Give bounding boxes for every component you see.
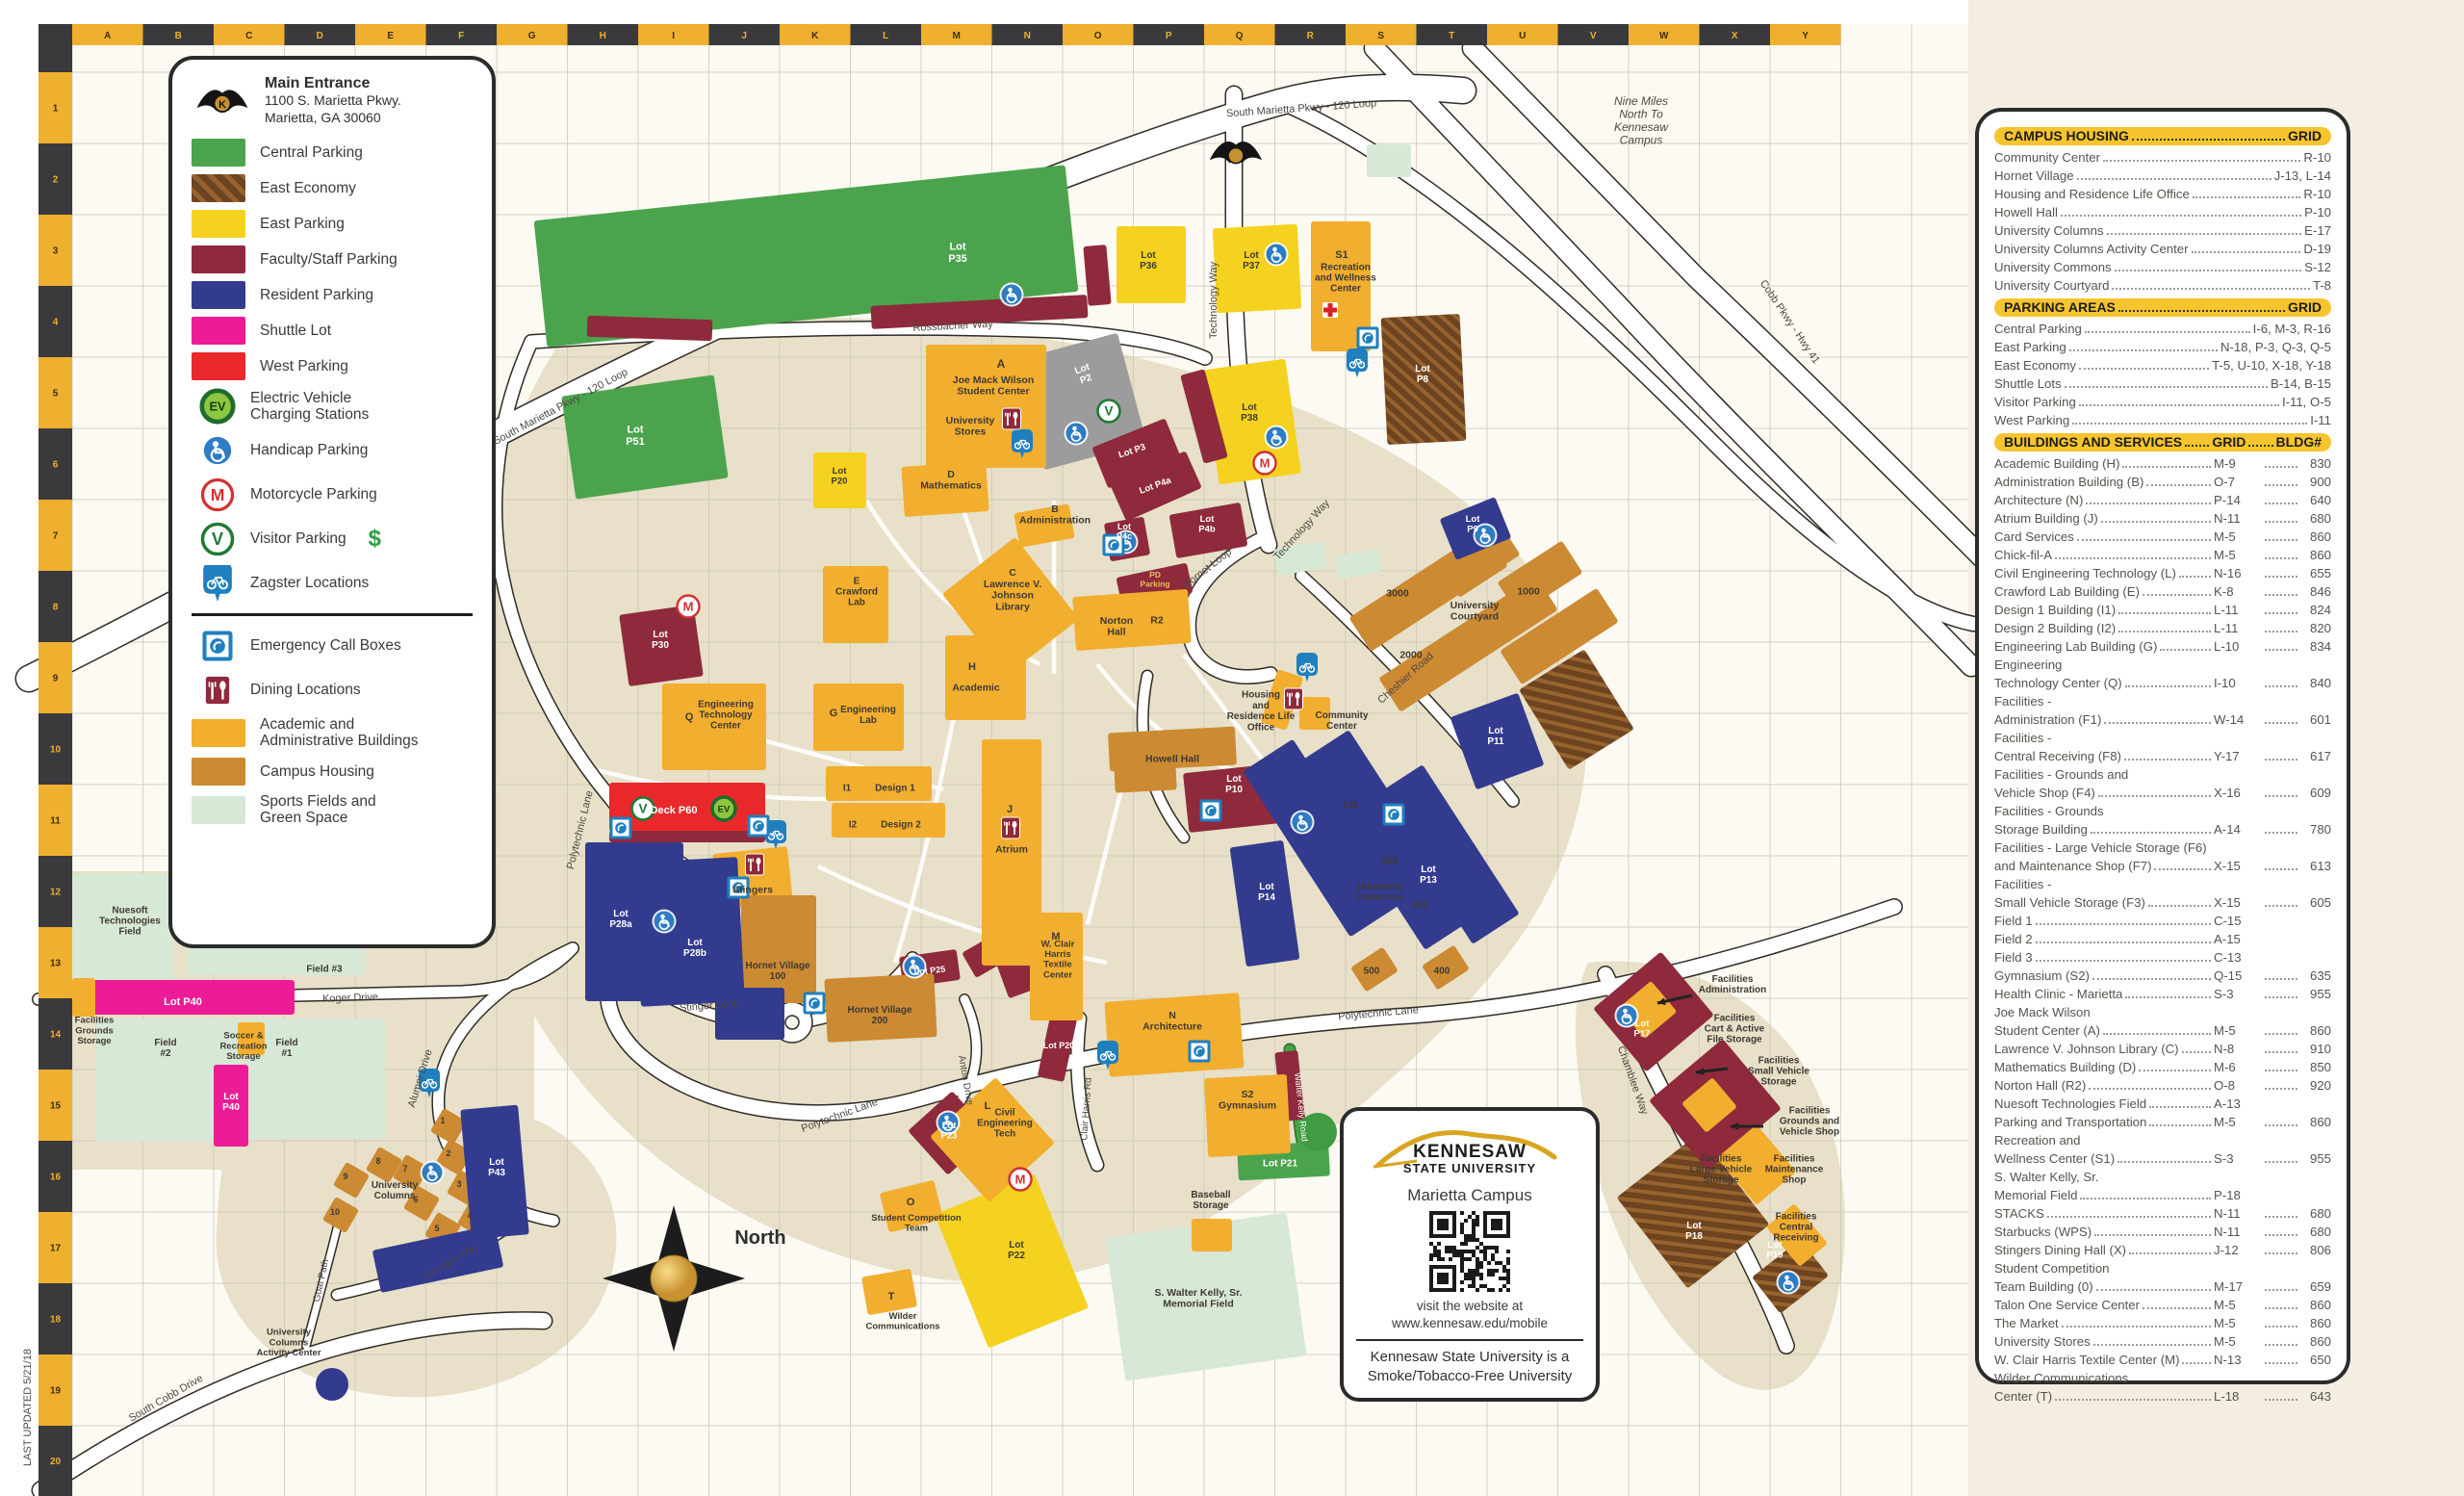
motorcycle-parking-icon: M bbox=[1010, 1169, 1032, 1191]
svg-text:M: M bbox=[683, 600, 694, 614]
index-entry: Atrium Building (J)N-11680 bbox=[1994, 509, 2331, 528]
map-label: LotP30 bbox=[652, 630, 669, 651]
index-column-header: GRID bbox=[2288, 128, 2322, 143]
map-label: Field #3 bbox=[306, 965, 343, 975]
index-entry-name: W. Clair Harris Textile Center (M) bbox=[1994, 1351, 2179, 1369]
index-entry: Starbucks (WPS)N-11680 bbox=[1994, 1223, 2331, 1241]
ruler-row-label: 12 bbox=[50, 888, 62, 898]
map-label: LotP20 bbox=[832, 466, 848, 487]
map-label: 6 bbox=[413, 1195, 418, 1204]
legend-item-label: East Parking bbox=[260, 216, 345, 232]
main-entrance-title: Main Entrance bbox=[265, 75, 401, 92]
ruler-col-label: H bbox=[600, 31, 606, 41]
index-entry-name: Parking and Transportation bbox=[1994, 1113, 2146, 1131]
map-label: LotP35 bbox=[948, 242, 967, 265]
index-entry-prefix: Facilities - Grounds bbox=[1994, 802, 2331, 820]
index-entry-grid: W-14 bbox=[2214, 710, 2262, 729]
paid-parking-dollar-icon: $ bbox=[369, 526, 381, 553]
index-entry-grid: A-13 bbox=[2214, 1095, 2262, 1113]
map-label: Howell Hall bbox=[1145, 754, 1199, 765]
map-label: Q bbox=[685, 711, 694, 723]
ruler-col-label: P bbox=[1166, 31, 1172, 41]
ruler-row-label: 18 bbox=[50, 1315, 62, 1326]
index-entry: Wellness Center (S1)S-3955 bbox=[1994, 1149, 2331, 1168]
legend-swatch bbox=[192, 796, 245, 824]
index-entry-grid: L-10 bbox=[2214, 637, 2262, 656]
index-column-header: GRID bbox=[2212, 434, 2246, 450]
map-label: 8 bbox=[375, 1156, 380, 1166]
map-label: LotP14 bbox=[1258, 882, 1275, 903]
svg-text:EV: EV bbox=[718, 805, 731, 815]
map-label: 5 bbox=[434, 1224, 439, 1233]
index-section-title: PARKING AREAS bbox=[2004, 299, 2116, 315]
index-entry-prefix: Facilities - bbox=[1994, 729, 2331, 747]
index-entry: STACKSN-11680 bbox=[1994, 1204, 2331, 1223]
map-label: Stingers bbox=[732, 885, 773, 896]
map-label: LotP22 bbox=[1008, 1240, 1025, 1261]
index-entry: Central ParkingI-6, M-3, R-16 bbox=[1994, 320, 2331, 338]
map-label: LotP37 bbox=[1243, 250, 1260, 271]
legend-item: Emergency Call Boxes bbox=[192, 628, 473, 664]
map-label: LotP36 bbox=[1140, 250, 1157, 271]
legend-item: Campus Housing bbox=[192, 758, 473, 786]
map-label: LotP4b bbox=[1198, 514, 1216, 535]
handicap-parking-icon bbox=[1265, 243, 1289, 267]
index-entry-bldg: 860 bbox=[2300, 1021, 2331, 1040]
index-entry-grid: I-11 bbox=[2310, 411, 2331, 429]
ruler-col-label: G bbox=[528, 31, 536, 41]
index-entry: Vehicle Shop (F4)X-16609 bbox=[1994, 784, 2331, 802]
svg-text:K: K bbox=[218, 99, 226, 111]
legend-item: Resident Parking bbox=[192, 281, 473, 309]
index-entry-grid: O-7 bbox=[2214, 473, 2262, 491]
index-entry-name: The Market bbox=[1994, 1314, 2059, 1332]
map-label: 9 bbox=[343, 1172, 347, 1181]
map-label: Design 2 bbox=[881, 820, 921, 831]
legend-item-label: Academic and Administrative Buildings bbox=[260, 716, 419, 750]
index-entry-name: Vehicle Shop (F4) bbox=[1994, 784, 2095, 802]
legend-item: East Parking bbox=[192, 210, 473, 238]
index-entry-bldg: 643 bbox=[2300, 1387, 2331, 1406]
ruler-row-label: 20 bbox=[50, 1457, 62, 1467]
legend-item: Zagster Locations bbox=[192, 565, 473, 602]
dining-icon bbox=[746, 854, 764, 875]
map-label: Deck P60 bbox=[651, 805, 698, 816]
index-entry-grid: M-6 bbox=[2214, 1058, 2262, 1076]
svg-text:STATE UNIVERSITY: STATE UNIVERSITY bbox=[1403, 1161, 1536, 1175]
emergency-callbox-icon bbox=[1201, 801, 1220, 820]
index-entry: University StoresM-5860 bbox=[1994, 1332, 2331, 1351]
dining-icon bbox=[1002, 817, 1020, 838]
index-entry-bldg: 680 bbox=[2300, 1204, 2331, 1223]
index-entry-name: and Maintenance Shop (F7) bbox=[1994, 857, 2151, 875]
svg-text:V: V bbox=[212, 529, 224, 549]
index-entry: Parking and TransportationM-5860 bbox=[1994, 1113, 2331, 1131]
index-section-title: BUILDINGS AND SERVICES bbox=[2004, 434, 2182, 450]
map-label: I2 bbox=[849, 820, 858, 831]
index-entry-name: Housing and Residence Life Office bbox=[1994, 185, 2190, 203]
emergency-callbox-icon bbox=[1358, 328, 1377, 348]
index-entry-grid: O-8 bbox=[2214, 1076, 2262, 1095]
index-entry: Community CenterR-10 bbox=[1994, 148, 2331, 167]
index-entry-name: Engineering Lab Building (G) bbox=[1994, 637, 2157, 656]
dining-icon bbox=[199, 672, 236, 709]
parking-lot bbox=[587, 316, 713, 342]
index-entry-bldg: 910 bbox=[2300, 1040, 2331, 1058]
index-entry-bldg: 601 bbox=[2300, 710, 2331, 729]
index-entry-grid: N-11 bbox=[2214, 1204, 2262, 1223]
map-label: Soccer &RecreationStorage bbox=[219, 1031, 267, 1062]
index-section-header: BUILDINGS AND SERVICESGRIDBLDG# bbox=[1994, 433, 2331, 451]
index-entry-grid: B-14, B-15 bbox=[2271, 374, 2331, 393]
index-entry-grid: S-3 bbox=[2214, 985, 2262, 1003]
ruler-row-label: 4 bbox=[53, 318, 59, 328]
map-label: W. ClairHarrisTextileCenter bbox=[1041, 939, 1075, 980]
index-entry-bldg: 955 bbox=[2300, 1149, 2331, 1168]
ruler-col-label: E bbox=[387, 31, 394, 41]
index-entry-grid: C-13 bbox=[2214, 948, 2262, 967]
ruler-col-label: X bbox=[1732, 31, 1738, 41]
legend-item: East Economy bbox=[192, 174, 473, 202]
index-entry-name: University Courtyard bbox=[1994, 276, 2109, 295]
legend-item-label: Motorcycle Parking bbox=[250, 486, 377, 503]
index-entry: University CommonsS-12 bbox=[1994, 258, 2331, 276]
legend-item-label: Zagster Locations bbox=[250, 575, 369, 591]
map-label: J bbox=[1007, 804, 1013, 815]
svg-text:M: M bbox=[211, 485, 225, 504]
index-entry-bldg: 680 bbox=[2300, 1223, 2331, 1241]
index-entry: W. Clair Harris Textile Center (M)N-1365… bbox=[1994, 1351, 2331, 1369]
ruler-col-label: M bbox=[953, 31, 961, 41]
index-entry-name: Mathematics Building (D) bbox=[1994, 1058, 2136, 1076]
ruler-col-label: F bbox=[458, 31, 464, 41]
map-label: Lot P21 bbox=[1263, 1159, 1298, 1170]
legend-swatch bbox=[192, 210, 245, 238]
ruler-col-label: K bbox=[811, 31, 819, 41]
index-entry-name: Chick-fil-A bbox=[1994, 546, 2052, 564]
legend-swatch bbox=[192, 139, 245, 167]
ruler-col-label: U bbox=[1519, 31, 1526, 41]
index-entry-bldg: 860 bbox=[2300, 1332, 2331, 1351]
index-entry-name: Nuesoft Technologies Field bbox=[1994, 1095, 2146, 1113]
index-entry: Field 1C-15 bbox=[1994, 912, 2331, 930]
index-entry-name: Design 1 Building (I1) bbox=[1994, 601, 2116, 619]
ev-charging-icon: EV bbox=[712, 797, 735, 820]
legend-swatch bbox=[192, 245, 245, 273]
index-entry-name: University Stores bbox=[1994, 1332, 2091, 1351]
index-entry: Gymnasium (S2)Q-15635 bbox=[1994, 967, 2331, 985]
map-label: 7 bbox=[402, 1164, 407, 1174]
index-entry-name: University Columns bbox=[1994, 221, 2104, 240]
index-entry: Design 1 Building (I1)L-11824 bbox=[1994, 601, 2331, 619]
handicap-parking-icon bbox=[421, 1161, 445, 1185]
index-entry-bldg: 830 bbox=[2300, 454, 2331, 473]
index-entry-name: Gymnasium (S2) bbox=[1994, 967, 2090, 985]
index-entry-name: West Parking bbox=[1994, 411, 2069, 429]
index-entry-grid: I-6, M-3, R-16 bbox=[2253, 320, 2331, 338]
index-entry: Hornet VillageJ-13, L-14 bbox=[1994, 167, 2331, 185]
handicap-parking-icon bbox=[1291, 811, 1315, 835]
index-entry-grid: X-15 bbox=[2214, 857, 2262, 875]
legend-swatch bbox=[192, 174, 245, 202]
index-entry-grid: J-12 bbox=[2214, 1241, 2262, 1259]
smoke-free-note: Kennesaw State University is a Smoke/Tob… bbox=[1356, 1339, 1583, 1385]
index-entry-name: Academic Building (H) bbox=[1994, 454, 2119, 473]
map-label: 1 bbox=[440, 1116, 445, 1125]
index-entry-name: Administration Building (B) bbox=[1994, 473, 2143, 491]
map-label: LotP23 bbox=[941, 1121, 958, 1142]
index-entry-grid: J-13, L-14 bbox=[2274, 167, 2331, 185]
index-entry-grid: N-18, P-3, Q-3, Q-5 bbox=[2220, 338, 2331, 356]
index-entry: Visitor ParkingI-11, O-5 bbox=[1994, 393, 2331, 411]
visitor-parking-icon: V bbox=[1098, 400, 1120, 423]
index-entry-name: Civil Engineering Technology (L) bbox=[1994, 564, 2176, 582]
index-entry-grid: T-5, U-10, X-18, Y-18 bbox=[2212, 356, 2331, 374]
index-entry-grid: N-11 bbox=[2214, 1223, 2262, 1241]
map-label: 100 bbox=[1343, 801, 1359, 812]
index-entry: East ParkingN-18, P-3, Q-3, Q-5 bbox=[1994, 338, 2331, 356]
ruler-col-label: R bbox=[1307, 31, 1315, 41]
index-entry-name: Wellness Center (S1) bbox=[1994, 1149, 2115, 1168]
ruler-col-label: T bbox=[1449, 31, 1454, 41]
map-label: S1 bbox=[1335, 249, 1347, 261]
ruler-col-label: S bbox=[1377, 31, 1384, 41]
legend-item-label: Electric Vehicle Charging Stations bbox=[250, 390, 369, 424]
index-entry: Team Building (0)M-17659 bbox=[1994, 1277, 2331, 1296]
index-entry-bldg: 850 bbox=[2300, 1058, 2331, 1076]
visitor-parking-icon: V bbox=[199, 521, 236, 557]
ruler-row-label: 9 bbox=[53, 674, 59, 684]
index-entry-grid: I-11, O-5 bbox=[2282, 393, 2331, 411]
legend-panel: K Main Entrance 1100 S. Marietta Pkwy. M… bbox=[168, 56, 496, 948]
index-entry-name: Administration (F1) bbox=[1994, 710, 2101, 729]
ruler-col-label: I bbox=[672, 31, 675, 41]
main-entrance-address1: 1100 S. Marietta Pkwy. bbox=[265, 92, 401, 110]
index-entry-name: Storage Building bbox=[1994, 820, 2088, 838]
index-entry: Talon One Service CenterM-5860 bbox=[1994, 1296, 2331, 1314]
map-label: 4 bbox=[467, 1211, 472, 1221]
index-entry-grid: E-17 bbox=[2304, 221, 2331, 240]
legend-items: Central ParkingEast EconomyEast ParkingF… bbox=[192, 139, 473, 826]
map-label: G bbox=[830, 708, 838, 719]
svg-text:EV: EV bbox=[209, 400, 226, 414]
map-label: H bbox=[968, 661, 976, 673]
legend-item: VVisitor Parking$ bbox=[192, 521, 473, 557]
compass-ball bbox=[651, 1255, 697, 1302]
ruler-row-label: 15 bbox=[50, 1101, 62, 1112]
index-entry-grid: S-3 bbox=[2214, 1149, 2262, 1168]
map-label: Joe Mack WilsonStudent Center bbox=[953, 374, 1035, 398]
index-entry-prefix: Joe Mack Wilson bbox=[1994, 1003, 2331, 1021]
legend-item: Sports Fields and Green Space bbox=[192, 793, 473, 827]
index-entry-name: East Economy bbox=[1994, 356, 2076, 374]
index-entry: Norton Hall (R2)O-8920 bbox=[1994, 1076, 2331, 1095]
index-entry-name: Atrium Building (J) bbox=[1994, 509, 2098, 528]
index-entry-name: Norton Hall (R2) bbox=[1994, 1076, 2086, 1095]
index-entry: East EconomyT-5, U-10, X-18, Y-18 bbox=[1994, 356, 2331, 374]
index-entry-bldg: 846 bbox=[2300, 582, 2331, 601]
ruler-row-label: 11 bbox=[50, 816, 61, 827]
ruler-row-label: 13 bbox=[50, 959, 62, 969]
building-academic bbox=[1192, 1219, 1232, 1251]
index-entry-grid: N-16 bbox=[2214, 564, 2262, 582]
legend-swatch bbox=[192, 352, 245, 380]
map-label: 10 bbox=[330, 1207, 340, 1217]
index-panel: CAMPUS HOUSINGGRIDCommunity CenterR-10Ho… bbox=[1975, 108, 2350, 1384]
map-label: LotP51 bbox=[626, 425, 645, 448]
legend-item: Shuttle Lot bbox=[192, 317, 473, 345]
index-entry-name: Lawrence V. Johnson Library (C) bbox=[1994, 1040, 2179, 1058]
index-entry-name: Howell Hall bbox=[1994, 203, 2058, 221]
index-entry-bldg: 680 bbox=[2300, 509, 2331, 528]
ev-charging-icon: EV bbox=[199, 388, 236, 425]
index-entry-bldg: 613 bbox=[2300, 857, 2331, 875]
index-entry-name: Crawford Lab Building (E) bbox=[1994, 582, 2140, 601]
index-entry-name: Student Center (A) bbox=[1994, 1021, 2100, 1040]
index-entry: Academic Building (H)M-9830 bbox=[1994, 454, 2331, 473]
index-entry: Student Center (A)M-5860 bbox=[1994, 1021, 2331, 1040]
campus-name: Marietta Campus bbox=[1407, 1186, 1531, 1205]
map-label: T bbox=[888, 1291, 895, 1303]
dining-icon bbox=[1003, 408, 1021, 429]
motorcycle-parking-icon: M bbox=[678, 596, 700, 618]
ruler-row-label: 16 bbox=[50, 1173, 62, 1183]
activity-center-circle bbox=[316, 1368, 348, 1401]
ruler-row-label: 6 bbox=[53, 460, 59, 471]
legend-item: Faculty/Staff Parking bbox=[192, 245, 473, 273]
handicap-parking-icon bbox=[199, 432, 236, 469]
legend-item: Central Parking bbox=[192, 139, 473, 167]
map-label: LotP8 bbox=[1415, 364, 1430, 385]
index-entry-grid: R-10 bbox=[2303, 148, 2331, 167]
legend-swatch bbox=[192, 719, 245, 747]
legend-item-label: Sports Fields and Green Space bbox=[260, 793, 376, 827]
building-academic bbox=[72, 978, 95, 1017]
sports-field bbox=[245, 1019, 385, 1139]
handicap-parking-icon bbox=[653, 910, 677, 934]
ruler-col-label: A bbox=[104, 31, 111, 41]
map-label: 300 bbox=[1412, 901, 1428, 912]
index-entry-name: Team Building (0) bbox=[1994, 1277, 2093, 1296]
ruler-col-label: J bbox=[741, 31, 747, 41]
map-label: 2 bbox=[446, 1148, 450, 1158]
emergency-callbox-icon bbox=[611, 818, 630, 838]
ruler-corner bbox=[38, 24, 72, 72]
index-entry-grid: L-11 bbox=[2214, 619, 2262, 637]
index-entry-name: Stingers Dining Hall (X) bbox=[1994, 1241, 2126, 1259]
svg-text:M: M bbox=[1015, 1173, 1026, 1187]
index-entry-bldg: 840 bbox=[2300, 674, 2331, 692]
svg-text:KENNESAW: KENNESAW bbox=[1413, 1142, 1527, 1162]
index-entry-grid: M-17 bbox=[2214, 1277, 2262, 1296]
index-entry-bldg: 617 bbox=[2300, 747, 2331, 765]
index-entry-bldg: 955 bbox=[2300, 985, 2331, 1003]
index-entry-grid: M-5 bbox=[2214, 1296, 2262, 1314]
ruler-row-label: 2 bbox=[53, 175, 59, 186]
map-label: A bbox=[997, 357, 1006, 371]
index-entry: and Maintenance Shop (F7)X-15613 bbox=[1994, 857, 2331, 875]
index-entry-name: Memorial Field bbox=[1994, 1186, 2077, 1204]
index-entry-grid: K-8 bbox=[2214, 582, 2262, 601]
legend-item: MMotorcycle Parking bbox=[192, 477, 473, 513]
index-entry-grid: A-15 bbox=[2214, 930, 2262, 948]
compass-label: North bbox=[734, 1227, 785, 1249]
index-entry-grid: C-15 bbox=[2214, 912, 2262, 930]
index-entry-prefix: Facilities - bbox=[1994, 692, 2331, 710]
index-entry-grid: X-16 bbox=[2214, 784, 2262, 802]
sports-field bbox=[1367, 144, 1411, 177]
ruler-col-label: V bbox=[1590, 31, 1597, 41]
ruler-col-label: D bbox=[317, 31, 323, 41]
index-entry-prefix: Facilities - Large Vehicle Storage (F6) bbox=[1994, 838, 2331, 857]
map-label: 3 bbox=[456, 1179, 461, 1189]
building-academic bbox=[1104, 993, 1244, 1077]
index-entry: Administration Building (B)O-7900 bbox=[1994, 473, 2331, 491]
legend-item-label: Campus Housing bbox=[260, 763, 374, 780]
index-entry-grid: R-10 bbox=[2303, 185, 2331, 203]
map-label: Lot P40 bbox=[164, 996, 202, 1008]
main-entrance-address2: Marietta, GA 30060 bbox=[265, 110, 401, 127]
index-entry-grid: Y-17 bbox=[2214, 747, 2262, 765]
index-entry-prefix: Student Competition bbox=[1994, 1259, 2331, 1277]
legend-item-label: Emergency Call Boxes bbox=[250, 637, 401, 654]
map-label: 400 bbox=[1434, 967, 1450, 977]
legend-item-label: Shuttle Lot bbox=[260, 322, 331, 339]
index-entry-name: Technology Center (Q) bbox=[1994, 674, 2122, 692]
index-entry: Chick-fil-AM-5860 bbox=[1994, 546, 2331, 564]
index-entry-grid: I-10 bbox=[2214, 674, 2262, 692]
index-entry-grid: X-15 bbox=[2214, 893, 2262, 912]
index-entry-name: Health Clinic - Marietta bbox=[1994, 985, 2122, 1003]
index-entry-name: Talon One Service Center bbox=[1994, 1296, 2140, 1314]
map-label: L bbox=[985, 1100, 991, 1112]
index-entry: Nuesoft Technologies FieldA-13 bbox=[1994, 1095, 2331, 1113]
map-label: LotP17 bbox=[1634, 1019, 1651, 1040]
ruler-col-label: L bbox=[883, 31, 888, 41]
building-academic bbox=[813, 684, 904, 751]
map-note: Nine MilesNorth ToKennesawCampus bbox=[1614, 94, 1669, 146]
legend-item-label: Handicap Parking bbox=[250, 442, 368, 458]
map-label: LotP18 bbox=[1685, 1221, 1703, 1242]
map-label: LotP43 bbox=[488, 1157, 505, 1178]
index-entry: Card ServicesM-5860 bbox=[1994, 528, 2331, 546]
index-entry: Engineering Lab Building (G)L-10834 bbox=[1994, 637, 2331, 656]
map-label: Lot P20 bbox=[1043, 1041, 1075, 1050]
map-label: Design 1 bbox=[875, 784, 915, 794]
map-label: Atrium bbox=[995, 844, 1028, 856]
campus-map-page: MMMVVEVLotP35LotP51Lot P21LotP36LotP37Lo… bbox=[0, 0, 2464, 1496]
legend-item: Academic and Administrative Buildings bbox=[192, 716, 473, 750]
legend-item-label: Visitor Parking bbox=[250, 530, 346, 547]
map-label: LotP10 bbox=[1225, 774, 1243, 795]
index-entry-name: Starbucks (WPS) bbox=[1994, 1223, 2092, 1241]
index-entry: Small Vehicle Storage (F3)X-15605 bbox=[1994, 893, 2331, 912]
index-entry: Storage BuildingA-14780 bbox=[1994, 820, 2331, 838]
index-entry-bldg: 920 bbox=[2300, 1076, 2331, 1095]
index-entry: West ParkingI-11 bbox=[1994, 411, 2331, 429]
map-label: 3000 bbox=[1386, 588, 1409, 600]
index-entry: Howell HallP-10 bbox=[1994, 203, 2331, 221]
legend-item-label: East Economy bbox=[260, 180, 356, 196]
index-section-header: CAMPUS HOUSINGGRID bbox=[1994, 127, 2331, 145]
index-entry-bldg: 780 bbox=[2300, 820, 2331, 838]
dining-icon bbox=[1285, 688, 1303, 709]
index-entry-bldg: 609 bbox=[2300, 784, 2331, 802]
index-entry-bldg: 860 bbox=[2300, 546, 2331, 564]
index-entry: Shuttle LotsB-14, B-15 bbox=[1994, 374, 2331, 393]
map-label: 500 bbox=[1364, 967, 1380, 977]
health-clinic-cross-icon bbox=[1322, 302, 1338, 318]
